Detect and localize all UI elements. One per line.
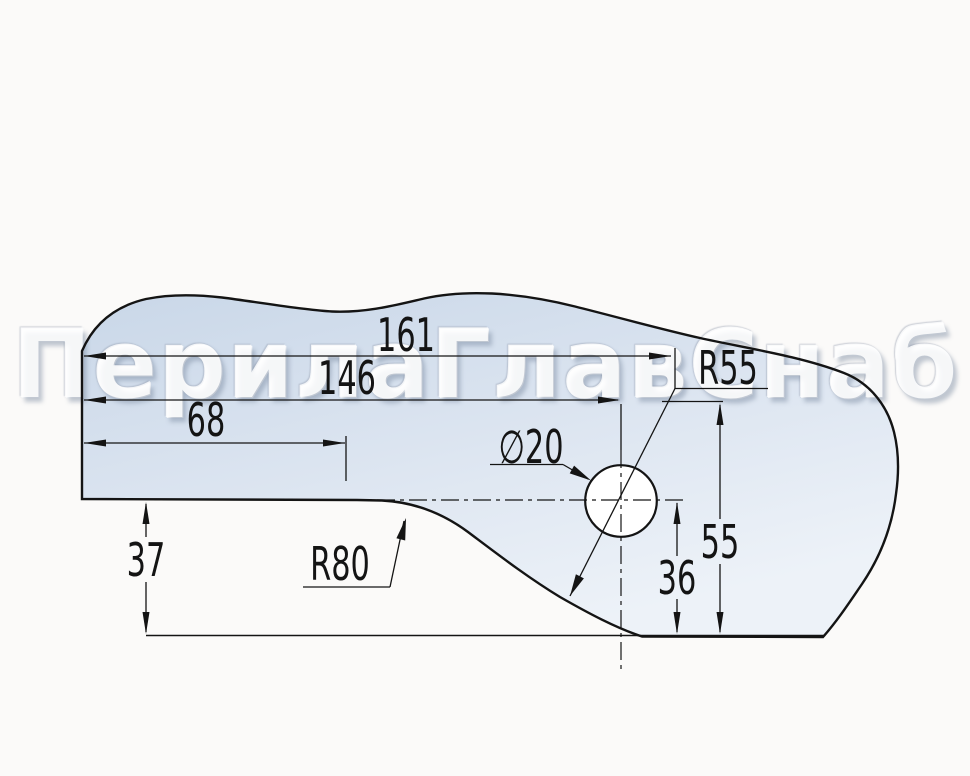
dim-label-68: 68 bbox=[187, 397, 226, 443]
arrow-55-down bbox=[717, 612, 724, 634]
dim-label-161: 161 bbox=[377, 312, 435, 358]
arrow-r80 bbox=[396, 518, 406, 541]
arrow-r55 bbox=[570, 574, 584, 596]
arrow-55-up bbox=[717, 403, 724, 425]
arrow-146-left bbox=[84, 397, 106, 404]
linework-layer bbox=[0, 0, 970, 776]
dim-label-37: 37 bbox=[127, 537, 166, 583]
dim-label-r80: R80 bbox=[310, 541, 370, 587]
drawing-canvas: ПерилаГлавСнаб bbox=[0, 0, 970, 776]
arrow-161-right bbox=[649, 353, 671, 360]
dim-label-dia20: ∅20 bbox=[498, 424, 563, 470]
dim-label-146: 146 bbox=[318, 355, 376, 401]
dim-label-55: 55 bbox=[701, 519, 740, 565]
arrow-36-down bbox=[674, 612, 681, 634]
arrow-146-right bbox=[598, 397, 620, 404]
arrow-161-left bbox=[84, 353, 106, 360]
arrow-36-up bbox=[674, 502, 681, 524]
arrow-dia20 bbox=[570, 466, 591, 481]
arrow-68-right bbox=[323, 440, 345, 447]
arrow-37-down bbox=[143, 612, 150, 634]
dim-label-36: 36 bbox=[658, 555, 697, 601]
dim-label-r55: R55 bbox=[698, 345, 758, 391]
arrow-68-left bbox=[84, 440, 106, 447]
arrow-37-up bbox=[143, 502, 150, 524]
